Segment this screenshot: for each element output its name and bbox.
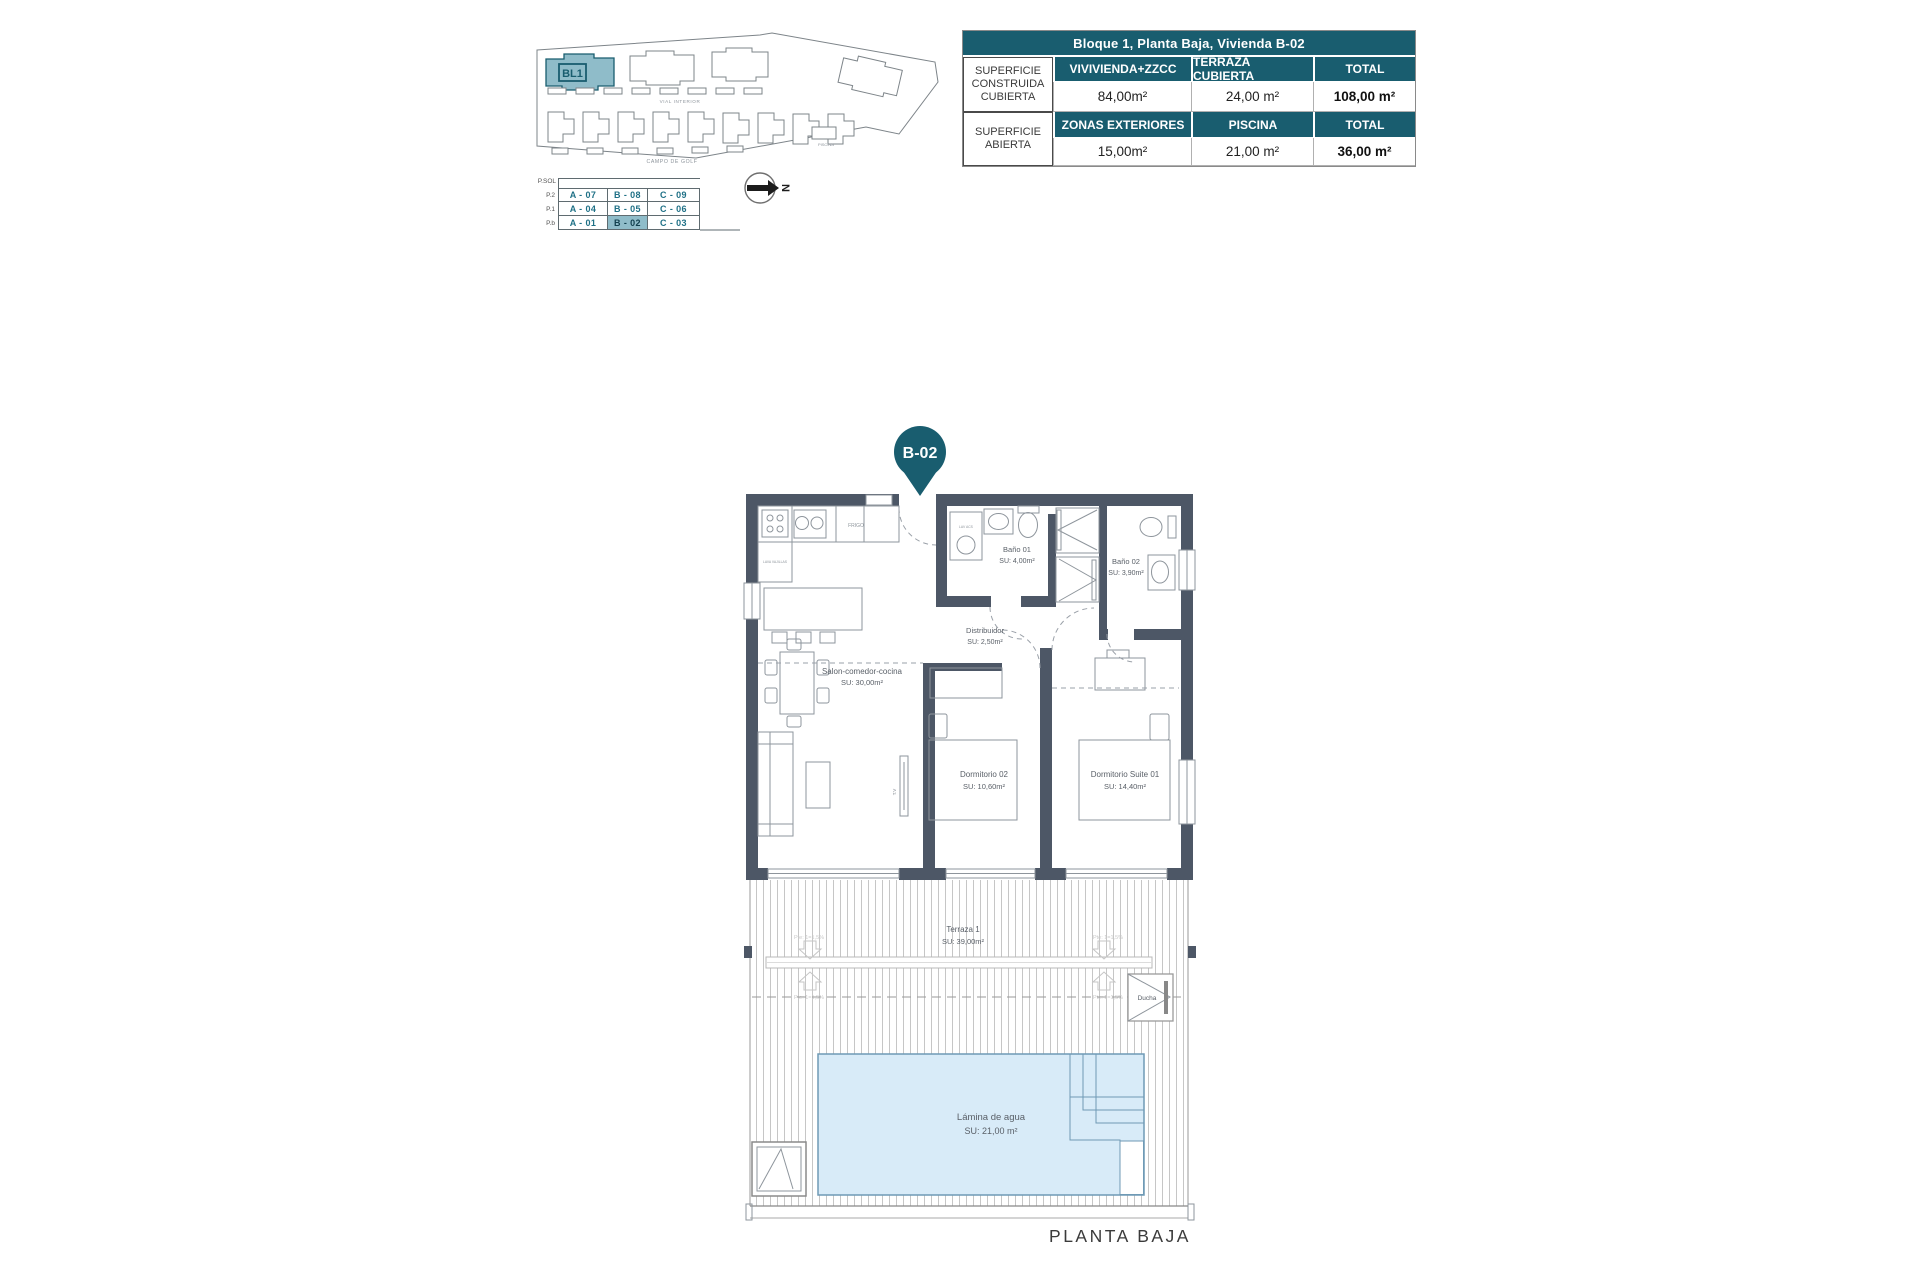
apartment-walls [746, 494, 1193, 880]
unit-cell-a01: A - 01 [559, 216, 608, 230]
cooktop [762, 510, 788, 537]
svg-text:Pte: 1=1,5%: Pte: 1=1,5% [1093, 935, 1123, 941]
room-label-distribuidor: Distribuidor [966, 626, 1004, 635]
spec-val-vivienda: 84,00m² [1053, 82, 1191, 112]
outdoor-shower: Ducha [1128, 974, 1173, 1021]
unit-pin: B-02 [894, 426, 946, 496]
legend-header: P.SOL [537, 178, 559, 188]
site-street-label: VIAL INTERIOR [660, 99, 701, 104]
site-pool-label: PISCINA [818, 142, 834, 147]
shower-02 [1056, 557, 1099, 602]
room-label-suite: Dormitorio Suite 01 [1091, 770, 1160, 779]
site-golf-label: CAMPO DE GOLF [646, 159, 697, 165]
spec-col-piscina: PISCINA [1191, 112, 1313, 138]
spec-rowheader-construida: SUPERFICIE CONSTRUIDA CUBIERTA [963, 57, 1053, 112]
unit-cell-b08: B - 08 [608, 188, 648, 202]
room-area-distribuidor: SU: 2,50m² [967, 639, 1003, 646]
site-houses-row [548, 112, 854, 144]
room-area-bano01: SU: 4,00m² [999, 558, 1035, 565]
sofa [758, 732, 793, 836]
legend-level-pb: P.b [537, 216, 559, 230]
room-label-terraza: Terraza 1 [946, 925, 980, 934]
spec-val-total-1: 108,00 m² [1313, 82, 1415, 112]
ducha-label: Ducha [1138, 995, 1157, 1002]
room-area-dorm02: SU: 10,60m² [963, 782, 1006, 791]
level-unit-table: P.SOL P.2 A - 07 B - 08 C - 09 P.1 A - 0… [537, 178, 700, 230]
bed-dormitorio-02 [929, 668, 1017, 820]
kitchen: FRIGO LAVA VAJILLAS [758, 506, 899, 643]
site-block-label: BL1 [562, 68, 583, 80]
unit-cell-c06: C - 06 [648, 202, 700, 216]
svg-text:Pte: 1=1,5%: Pte: 1=1,5% [794, 935, 824, 941]
svg-text:Pte: 1=1,5%: Pte: 1=1,5% [794, 995, 824, 1001]
unit-cell-a04: A - 04 [559, 202, 608, 216]
windows [744, 495, 1195, 878]
swimming-pool [818, 1054, 1144, 1195]
kitchen-island [764, 588, 862, 630]
legend-level-p2: P.2 [537, 188, 559, 202]
dishwasher-label: LAVA VAJILLAS [763, 560, 788, 564]
room-label-dorm02: Dormitorio 02 [960, 770, 1009, 779]
spec-val-exteriores: 15,00m² [1053, 138, 1191, 166]
legend-level-p1: P.1 [537, 202, 559, 216]
room-label-salon: Salon-comedor-cocina [822, 667, 903, 676]
spec-col-vivienda: VIVIVIENDA+ZZCC [1053, 57, 1191, 82]
unit-pin-label: B-02 [903, 445, 938, 462]
water-heater-label: LAV ACS [959, 525, 974, 529]
spec-table-title: Bloque 1, Planta Baja, Vivienda B-02 [963, 31, 1415, 57]
site-block-bl1: BL1 [546, 54, 614, 90]
spec-val-piscina: 21,00 m² [1191, 138, 1313, 166]
svg-text:Pte: 1=1,5%: Pte: 1=1,5% [1093, 995, 1123, 1001]
room-label-bano02: Baño 02 [1112, 557, 1140, 566]
surface-spec-table: Bloque 1, Planta Baja, Vivienda B-02 SUP… [962, 30, 1416, 167]
toilet-02 [1140, 518, 1162, 537]
spec-col-exteriores: ZONAS EXTERIORES [1053, 112, 1191, 138]
wall-niche [866, 495, 892, 505]
kitchen-sink [794, 510, 826, 538]
shower-01 [1056, 508, 1099, 553]
unit-cell-b05: B - 05 [608, 202, 648, 216]
room-label-bano01: Baño 01 [1003, 545, 1031, 554]
unit-cell-b02-highlighted: B - 02 [608, 216, 648, 230]
sink-02 [1148, 555, 1175, 590]
unit-cell-c09: C - 09 [648, 188, 700, 202]
bed-suite-01 [1079, 650, 1170, 820]
room-area-suite: SU: 14,40m² [1104, 782, 1147, 791]
site-pool-shape [812, 127, 836, 139]
tv-label: T.V [892, 789, 897, 796]
fridge-label: FRIGO [848, 523, 864, 529]
plan-caption: PLANTA BAJA [1020, 1226, 1220, 1247]
toilet-01 [1018, 506, 1039, 513]
unit-cell-a07: A - 07 [559, 188, 608, 202]
north-label: N [779, 184, 791, 192]
spec-rowheader-abierta: SUPERFICIE ABIERTA [963, 112, 1053, 166]
north-arrow-icon: N [745, 173, 791, 203]
tv-unit: T.V [892, 756, 908, 816]
spec-val-terraza: 24,00 m² [1191, 82, 1313, 112]
spec-col-terraza: TERRAZA CUBIERTA [1191, 57, 1313, 82]
room-area-lamina: SU: 21,00 m² [964, 1126, 1017, 1136]
dining-table [765, 639, 829, 727]
spec-col-total-1: TOTAL [1313, 57, 1415, 82]
unit-cell-c03: C - 03 [648, 216, 700, 230]
spec-col-total-2: TOTAL [1313, 112, 1415, 138]
coffee-table [806, 762, 830, 808]
planter-box [752, 1142, 806, 1196]
room-label-lamina: Lámina de agua [957, 1112, 1026, 1123]
room-area-bano02: SU: 3,90m² [1108, 570, 1144, 577]
room-area-terraza: SU: 39,00m² [942, 937, 985, 946]
spec-val-total-2: 36,00 m² [1313, 138, 1415, 166]
room-area-salon: SU: 30,00m² [841, 678, 884, 687]
plan-drawing: BL1 VIAL INTERIOR PISCINA CAMPO [0, 0, 1920, 1280]
